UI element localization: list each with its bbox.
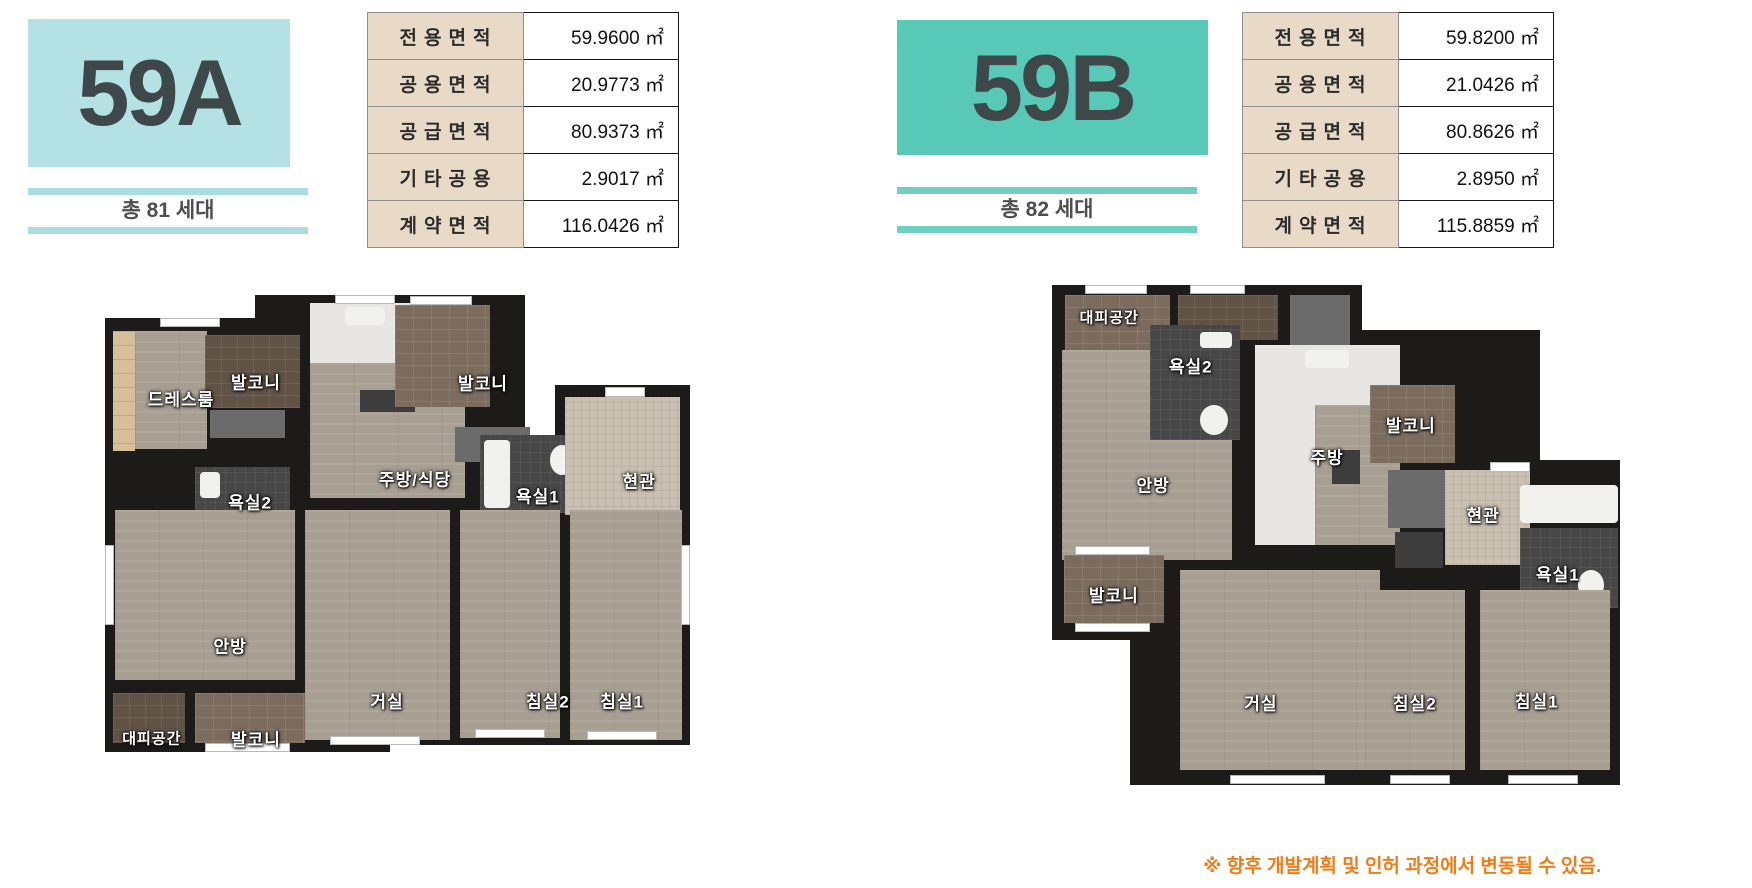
window [1508,775,1578,784]
room-label-bath1: 욕실1 [1536,561,1580,586]
window [330,736,420,745]
room-label-kitchen-dining: 주방/식당 [379,466,451,491]
area-label: 계약면적 [1243,201,1399,248]
area-value: 115.8859 ㎡ [1399,201,1554,248]
bath2-sink [200,472,220,498]
unit-a-area-table: 전용면적 59.9600 ㎡ 공용면적 20.9773 ㎡ 공급면적 80.93… [367,12,679,248]
room-label-refuge: 대피공간 [1080,306,1139,327]
disclaimer-note: ※ 향후 개발계획 및 인허 과정에서 변동될 수 있음. [1203,851,1601,878]
kitchen-sink [1305,350,1349,368]
entry-closet [1388,470,1450,528]
room-entrance [565,397,680,515]
window [587,731,657,740]
room-bedroom1 [1480,590,1610,770]
entrance-door [605,387,645,397]
room-label-entrance: 현관 [622,467,655,492]
storage-box [1290,295,1350,350]
room-label-kitchen: 주방 [1310,444,1343,469]
room-label-bedroom1: 침실1 [600,687,644,712]
unit-a-bottom-rule [28,227,308,234]
room-label-bedroom2: 침실2 [526,687,570,712]
unit-b-badge: 59B [897,20,1208,155]
unit-b-code: 59B [971,34,1134,142]
table-row: 기타공용 2.9017 ㎡ [368,154,679,201]
window [1190,285,1245,294]
unit-b-households: 총 82 세대 [897,193,1197,223]
room-label-bedroom1: 침실1 [1515,688,1559,713]
area-label: 계약면적 [368,201,524,248]
window [105,545,114,625]
ac-unit-box [210,410,285,438]
area-label: 기타공용 [368,154,524,201]
table-row: 전용면적 59.8200 ㎡ [1243,13,1554,60]
window [410,296,472,305]
room-label-balcony: 발코니 [231,369,281,394]
bath1-tub [1520,485,1618,523]
area-label: 기타공용 [1243,154,1399,201]
area-value: 20.9773 ㎡ [524,60,679,107]
table-row: 공용면적 21.0426 ㎡ [1243,60,1554,107]
room-label-balcony: 발코니 [458,369,508,394]
bath1-tub [484,440,510,508]
area-value: 21.0426 ㎡ [1399,60,1554,107]
table-row: 계약면적 115.8859 ㎡ [1243,201,1554,248]
area-label: 전용면적 [1243,13,1399,60]
room-label-balcony: 발코니 [1089,581,1139,606]
room-label-refuge: 대피공간 [122,727,181,748]
area-value: 80.9373 ㎡ [524,107,679,154]
unit-b-bottom-rule [897,226,1197,233]
room-label-living: 거실 [370,687,403,712]
table-row: 공급면적 80.8626 ㎡ [1243,107,1554,154]
area-value: 2.9017 ㎡ [524,154,679,201]
room-bedroom2 [1365,590,1465,770]
room-living [1180,570,1380,770]
room-dressroom-wardrobe [113,331,135,451]
room-label-bath1: 욕실1 [516,483,560,508]
unit-a-households: 총 81 세대 [28,194,308,224]
area-label: 공급면적 [368,107,524,154]
window [160,318,220,327]
room-label-balcony: 발코니 [231,725,281,750]
room-label-bath2: 욕실2 [228,489,272,514]
room-label-entrance: 현관 [1467,501,1500,526]
unit-a-code: 59A [77,39,240,147]
kitchen-sink [345,307,385,325]
area-value: 59.9600 ㎡ [524,13,679,60]
unit-b-area-table: 전용면적 59.8200 ㎡ 공용면적 21.0426 ㎡ 공급면적 80.86… [1242,12,1554,248]
bath2-toilet [1200,405,1228,435]
area-value: 2.8950 ㎡ [1399,154,1554,201]
window [335,295,395,304]
window [681,545,690,625]
area-value: 59.8200 ㎡ [1399,13,1554,60]
room-label-living: 거실 [1244,690,1277,715]
window [1390,775,1450,784]
room-master-bedroom [115,510,295,680]
window [1230,775,1325,784]
area-label: 공급면적 [1243,107,1399,154]
bath2-sink [1200,332,1232,348]
area-value: 80.8626 ㎡ [1399,107,1554,154]
room-label-balcony: 발코니 [1386,411,1436,436]
floorplan-59a: 드레스룸 발코니 욕실2 주방/식당 발코니 욕실1 현관 안방 거실 침실2 … [105,295,690,755]
area-label: 전용면적 [368,13,524,60]
area-label: 공용면적 [368,60,524,107]
room-label-dressroom: 드레스룸 [148,386,215,411]
window [1085,285,1147,294]
flyer-page: 59A 총 81 세대 전용면적 59.9600 ㎡ 공용면적 20.9773 … [0,0,1752,888]
area-label: 공용면적 [1243,60,1399,107]
floorplan-59b: 대피공간 욕실2 안방 주방 발코니 현관 욕실1 발코니 거실 침실2 침실1 [1050,270,1620,790]
room-label-bedroom2: 침실2 [1393,690,1437,715]
table-row: 공급면적 80.9373 ㎡ [368,107,679,154]
table-row: 계약면적 116.0426 ㎡ [368,201,679,248]
room-label-master-bedroom: 안방 [1137,472,1170,497]
table-row: 공용면적 20.9773 ㎡ [368,60,679,107]
room-label-master-bedroom: 안방 [214,633,247,658]
window [475,729,545,738]
window [1075,623,1150,632]
table-row: 기타공용 2.8950 ㎡ [1243,154,1554,201]
table-row: 전용면적 59.9600 ㎡ [368,13,679,60]
entrance-door [1490,462,1530,472]
room-label-bath2: 욕실2 [1169,353,1213,378]
area-value: 116.0426 ㎡ [524,201,679,248]
window [1075,546,1150,555]
unit-a-badge: 59A [28,19,290,167]
entry-closet [1395,532,1443,568]
